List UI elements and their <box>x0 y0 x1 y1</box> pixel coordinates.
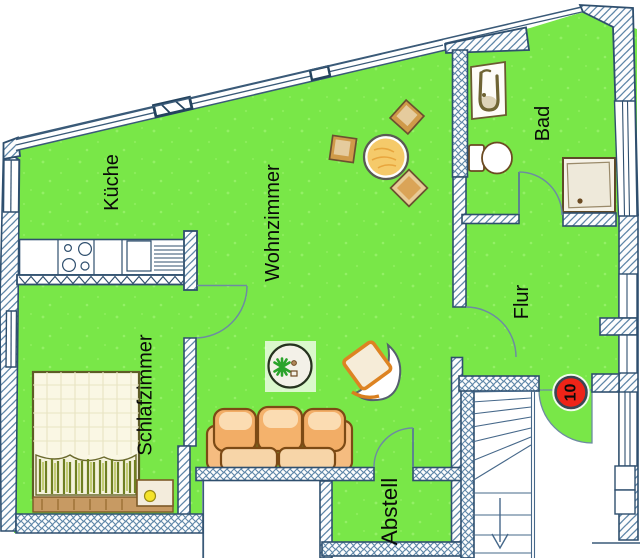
svg-text:Schlafzimmer: Schlafzimmer <box>135 334 157 455</box>
svg-text:Küche: Küche <box>101 154 123 211</box>
svg-text:Flur: Flur <box>511 284 533 319</box>
svg-text:Abstell: Abstell <box>377 478 402 546</box>
svg-text:10: 10 <box>563 384 580 402</box>
svg-text:Wohnzimmer: Wohnzimmer <box>262 164 284 282</box>
svg-text:Bad: Bad <box>532 106 554 142</box>
